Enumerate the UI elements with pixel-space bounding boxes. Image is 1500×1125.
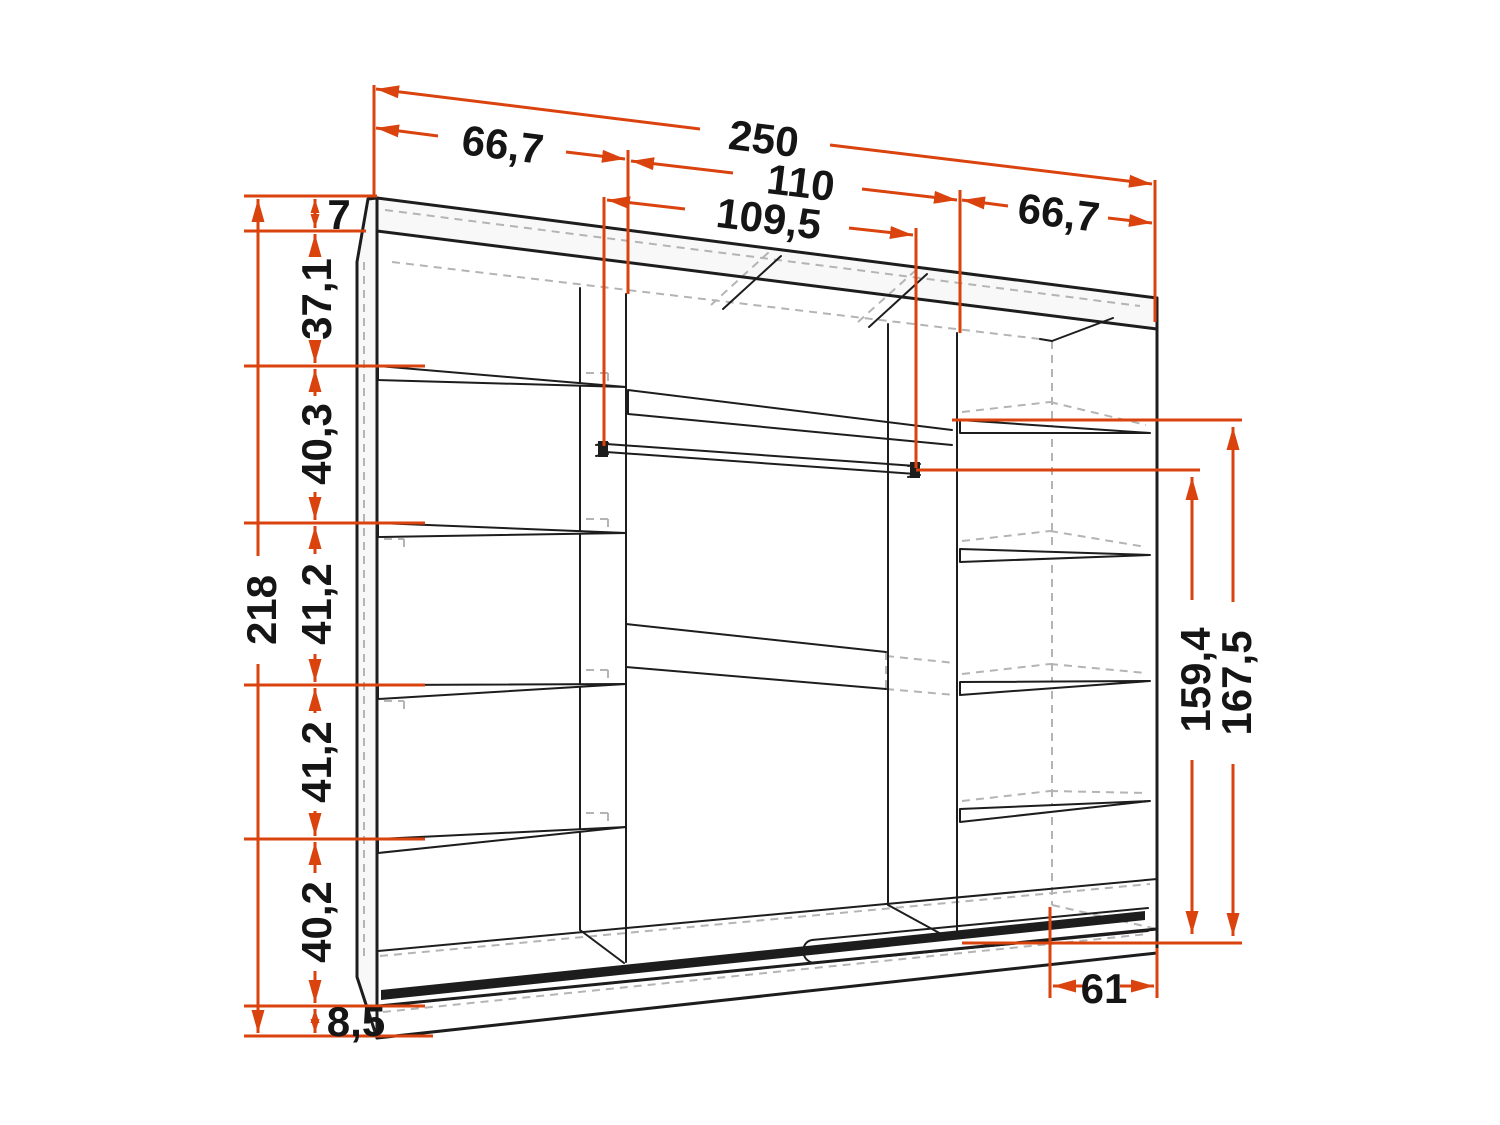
dim-total-height-label: 218 bbox=[238, 575, 285, 645]
wardrobe-drawing bbox=[357, 198, 1157, 1038]
hanging-rail-bar bbox=[606, 444, 916, 474]
left-side-panel-face bbox=[357, 198, 377, 1038]
dim-right-section-width: 66,7 bbox=[962, 184, 1152, 241]
dim-section-41-2a: 41,2 bbox=[293, 526, 340, 682]
shelf bbox=[960, 420, 1150, 433]
dim-section-41-2b: 41,2 bbox=[293, 688, 340, 836]
dim-section-40-3-label: 40,3 bbox=[293, 403, 340, 485]
dim-rail-height-label: 159,4 bbox=[1172, 627, 1219, 733]
dim-section-37-1: 37,1 bbox=[293, 234, 340, 363]
right-partition bbox=[888, 324, 957, 935]
shelf bbox=[378, 366, 626, 387]
shelf bbox=[378, 523, 626, 537]
dim-depth: 61 bbox=[1053, 965, 1154, 1012]
dim-shelf-height-label: 167,5 bbox=[1213, 630, 1260, 735]
dim-rail-height: 159,4 bbox=[1172, 477, 1219, 934]
dim-section-41-2a-label: 41,2 bbox=[293, 563, 340, 645]
dim-section-40-3: 40,3 bbox=[293, 369, 340, 520]
hidden-edges bbox=[364, 210, 1157, 1012]
track-rail-black-band bbox=[381, 911, 1145, 1000]
dim-section-41-2b-label: 41,2 bbox=[293, 721, 340, 803]
dim-shelf-height: 167,5 bbox=[1213, 427, 1260, 936]
carcass-frame bbox=[357, 198, 1157, 1038]
dim-section-37-1-label: 37,1 bbox=[293, 258, 340, 340]
dim-section-40-2-label: 40,2 bbox=[293, 881, 340, 963]
middle-top-shelf bbox=[628, 390, 952, 445]
shelf bbox=[960, 549, 1150, 562]
right-shelves bbox=[960, 420, 1150, 822]
dim-plinth-height-label: 8,5 bbox=[327, 998, 385, 1045]
door-track bbox=[381, 908, 1148, 1000]
hanging-rail bbox=[596, 441, 920, 478]
dim-left-section-width-label: 66,7 bbox=[459, 116, 546, 173]
dim-total-height: 218 bbox=[238, 199, 285, 1033]
shelf bbox=[960, 801, 1150, 822]
left-shelves bbox=[378, 366, 626, 853]
dim-depth-label: 61 bbox=[1081, 965, 1128, 1012]
dim-right-section-width-label: 66,7 bbox=[1015, 184, 1102, 241]
shelf bbox=[960, 681, 1150, 695]
middle-divider bbox=[626, 624, 886, 689]
wardrobe-dimension-diagram: 250 66,7 110 109,5 66,7 218 bbox=[0, 0, 1500, 1125]
dim-section-40-2: 40,2 bbox=[293, 842, 340, 1003]
dim-left-section-width: 66,7 bbox=[376, 116, 625, 173]
dim-top-rail-height-label: 7 bbox=[327, 191, 350, 238]
diagram-canvas: 250 66,7 110 109,5 66,7 218 bbox=[0, 0, 1500, 1125]
top-rail-bottom-edge bbox=[377, 231, 1157, 329]
